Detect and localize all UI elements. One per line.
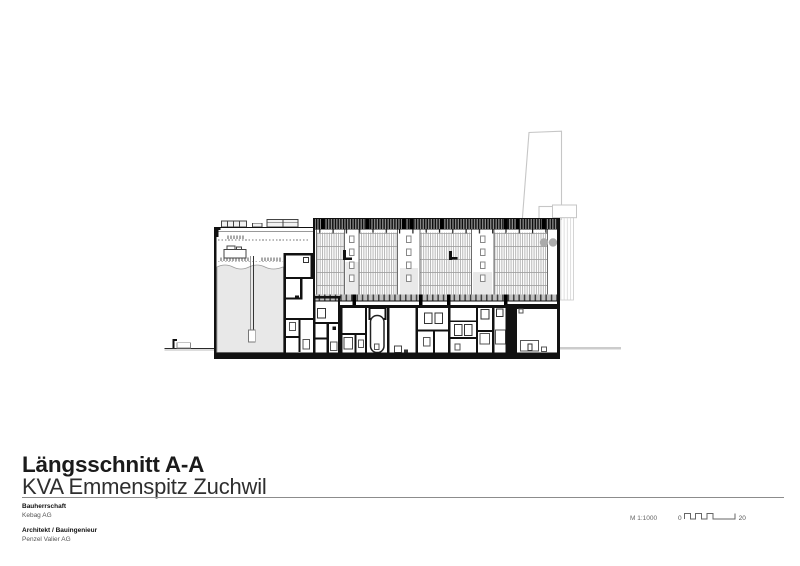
ground-line-right bbox=[560, 348, 621, 351]
scale-bar: 0 20 bbox=[678, 511, 746, 522]
louver-band bbox=[313, 295, 558, 301]
ground-slab bbox=[214, 353, 560, 360]
info-block-client: Bauherrschaft Kebag AG bbox=[22, 503, 66, 520]
waste-bunker-block bbox=[214, 220, 313, 354]
scale-bar-start-label: 0 bbox=[678, 515, 682, 522]
architect-label: Architekt / Bauingenieur bbox=[22, 527, 97, 535]
boiler-hall bbox=[313, 218, 560, 353]
background-facade-extension bbox=[560, 218, 574, 301]
boiler-capsule bbox=[371, 316, 385, 353]
ground-line-left bbox=[165, 339, 215, 350]
roof-slat-band bbox=[314, 219, 560, 229]
architect-value: Penzel Valier AG bbox=[22, 536, 97, 544]
info-block-architect: Architekt / Bauingenieur Penzel Valier A… bbox=[22, 527, 97, 544]
scale-bar-end-label: 20 bbox=[739, 515, 746, 522]
client-value: Kebag AG bbox=[22, 512, 66, 520]
client-label: Bauherrschaft bbox=[22, 503, 66, 511]
rooftop-equipment bbox=[222, 220, 299, 228]
scale-text: M 1:1000 bbox=[630, 515, 657, 522]
crane-grab bbox=[249, 330, 256, 342]
rooftop-penthouse-outline bbox=[553, 205, 577, 218]
title-divider bbox=[22, 497, 784, 498]
scale-bar-graphic bbox=[684, 511, 737, 521]
